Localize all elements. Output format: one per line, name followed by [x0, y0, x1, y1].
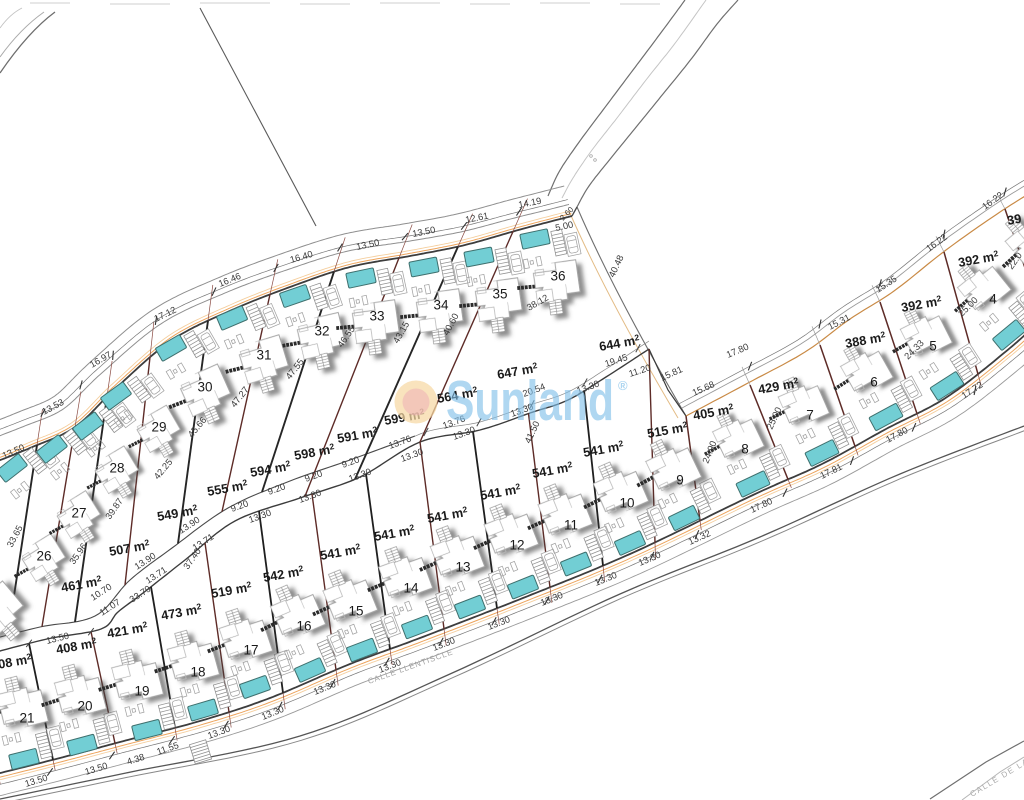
- svg-text:21: 21: [19, 711, 34, 726]
- svg-text:16: 16: [296, 619, 311, 634]
- svg-text:4: 4: [989, 292, 997, 307]
- svg-text:5: 5: [929, 339, 937, 354]
- svg-text:13: 13: [455, 560, 470, 575]
- svg-text:34: 34: [433, 298, 449, 313]
- svg-text:36: 36: [550, 269, 565, 284]
- svg-text:10: 10: [619, 496, 634, 511]
- svg-text:29: 29: [151, 420, 166, 435]
- svg-text:6: 6: [870, 375, 878, 390]
- svg-text:32: 32: [314, 324, 329, 339]
- svg-text:17: 17: [243, 643, 258, 658]
- svg-text:31: 31: [256, 348, 271, 363]
- svg-text:26: 26: [36, 549, 51, 564]
- svg-text:30: 30: [197, 380, 212, 395]
- svg-text:11: 11: [564, 518, 578, 533]
- svg-text:19: 19: [134, 684, 149, 699]
- svg-text:35: 35: [492, 287, 507, 302]
- svg-text:27: 27: [71, 506, 86, 521]
- svg-text:8: 8: [741, 442, 749, 457]
- svg-text:33: 33: [369, 309, 384, 324]
- svg-text:20: 20: [77, 699, 92, 714]
- svg-text:18: 18: [190, 665, 205, 680]
- svg-text:14: 14: [403, 581, 419, 596]
- svg-text:12: 12: [509, 538, 524, 553]
- svg-text:15: 15: [348, 604, 363, 619]
- svg-text:®: ®: [618, 378, 628, 393]
- svg-text:28: 28: [109, 461, 124, 476]
- svg-text:9: 9: [676, 473, 684, 488]
- svg-text:Sunland: Sunland: [446, 369, 614, 433]
- svg-text:7: 7: [806, 408, 814, 423]
